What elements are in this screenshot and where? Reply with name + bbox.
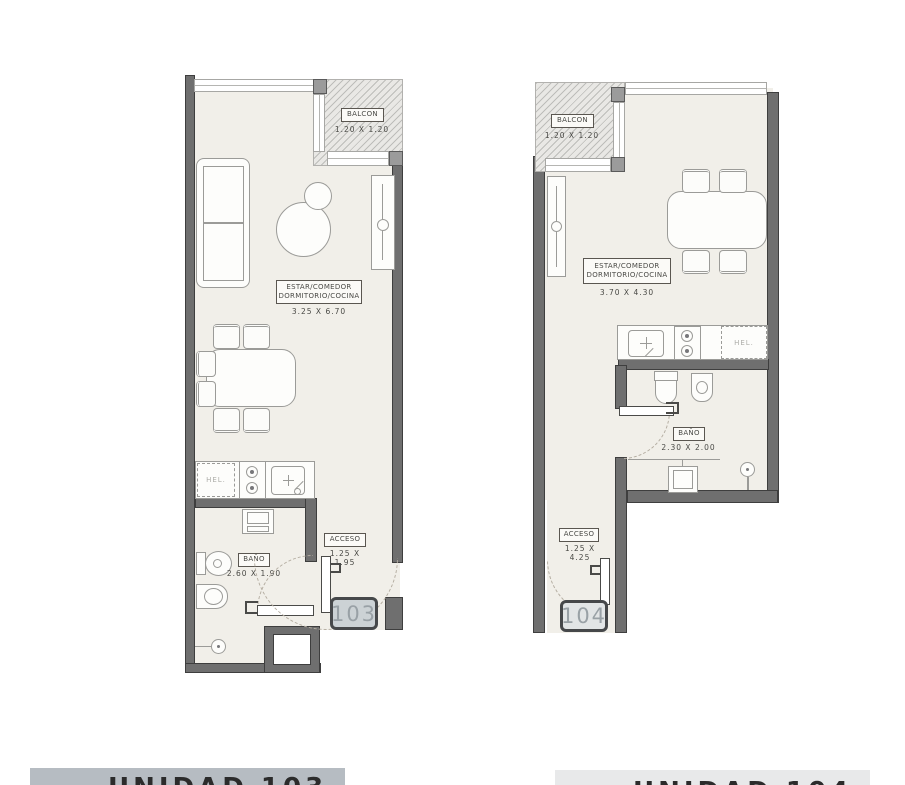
chair bbox=[243, 408, 270, 433]
burner-dot bbox=[250, 470, 254, 474]
dining-table bbox=[667, 191, 767, 249]
door-handle-hook bbox=[590, 565, 600, 575]
vanity-basin bbox=[247, 512, 269, 524]
chair bbox=[196, 351, 216, 377]
dining-table bbox=[206, 349, 296, 407]
balcony-label-103: BALCON bbox=[341, 108, 384, 122]
wall bbox=[385, 597, 403, 630]
window bbox=[194, 79, 314, 92]
window bbox=[625, 82, 767, 95]
access-label-104: ACCESO bbox=[559, 528, 599, 542]
floor-plan-page: BALCON 1.20 X 1.20 ESTAR/COMEDOR DORMITO… bbox=[0, 0, 905, 785]
bidet-basin bbox=[696, 381, 708, 394]
wall bbox=[185, 75, 195, 673]
shower-line bbox=[195, 646, 211, 647]
wall bbox=[627, 490, 778, 503]
room-label-line1: ESTAR/COMEDOR bbox=[594, 262, 659, 271]
sofa-cushion bbox=[203, 166, 244, 223]
vanity-basin bbox=[247, 526, 269, 532]
chair bbox=[682, 250, 710, 274]
wall bbox=[195, 498, 317, 508]
footer-title-103: UNIDAD 103 bbox=[108, 773, 327, 785]
chair bbox=[719, 250, 747, 274]
access-label-text: ACCESO bbox=[330, 535, 361, 544]
wall bbox=[615, 457, 627, 633]
toilet-bowl bbox=[655, 380, 677, 404]
entry-door-leaf-104 bbox=[600, 558, 610, 605]
vanity-basin bbox=[673, 470, 693, 489]
chair bbox=[196, 381, 216, 407]
burner-dot bbox=[685, 334, 689, 338]
bath-label-104: BAÑO bbox=[673, 427, 705, 441]
toilet-detail bbox=[213, 559, 222, 568]
chair bbox=[682, 169, 710, 193]
balcony-label-104: BALCON bbox=[551, 114, 594, 128]
fridge: HEL. bbox=[721, 326, 767, 359]
bath-dims-104: 2.30 X 2.00 bbox=[661, 443, 716, 452]
unit-number-badge-104: 104 bbox=[560, 600, 608, 632]
pouf bbox=[304, 182, 332, 210]
room-label-103: ESTAR/COMEDOR DORMITORIO/COCINA bbox=[276, 280, 362, 304]
chair bbox=[213, 408, 240, 433]
window bbox=[327, 151, 389, 166]
column bbox=[389, 151, 403, 166]
window bbox=[545, 158, 611, 172]
chair bbox=[243, 324, 270, 349]
drain-dot bbox=[217, 645, 220, 648]
bidet-basin bbox=[204, 588, 223, 605]
room-label-line2: DORMITORIO/COCINA bbox=[279, 292, 360, 301]
wall bbox=[533, 156, 545, 633]
access-label-103: ACCESO bbox=[324, 533, 366, 547]
burner-dot bbox=[685, 349, 689, 353]
round-table bbox=[276, 202, 331, 257]
column bbox=[611, 87, 625, 102]
door-handle-hook bbox=[331, 563, 341, 573]
floor-cut-103 bbox=[320, 630, 405, 675]
balcony-dims-104: 1.20 X 1.20 bbox=[541, 131, 603, 140]
room-dims-103: 3.25 X 6.70 bbox=[283, 307, 355, 316]
door-handle bbox=[377, 219, 389, 231]
room-label-line2: DORMITORIO/COCINA bbox=[587, 271, 668, 280]
window bbox=[613, 102, 625, 158]
wall bbox=[767, 92, 779, 503]
chair bbox=[719, 169, 747, 193]
balcony-dims-103: 1.20 X 1.20 bbox=[329, 125, 395, 134]
drain-stem bbox=[747, 477, 749, 490]
shower-edge bbox=[628, 459, 720, 460]
unit-number-103: 103 bbox=[331, 602, 377, 626]
duct-shaft bbox=[273, 634, 311, 665]
chair bbox=[213, 324, 240, 349]
burner-dot bbox=[250, 486, 254, 490]
bath-label-text: BAÑO bbox=[678, 429, 700, 438]
drain-dot bbox=[746, 468, 749, 471]
fridge: HEL. bbox=[197, 463, 235, 497]
access-label-text: ACCESO bbox=[564, 530, 595, 539]
room-label-104: ESTAR/COMEDOR DORMITORIO/COCINA bbox=[583, 258, 671, 284]
footer-title-104: UNIDAD 104 bbox=[633, 777, 852, 785]
wall bbox=[615, 365, 627, 409]
unit-number-badge-103: 103 bbox=[330, 597, 378, 630]
column bbox=[611, 157, 625, 172]
sink-cross bbox=[288, 475, 289, 486]
unit-number-104: 104 bbox=[561, 604, 607, 628]
room-dims-104: 3.70 X 4.30 bbox=[591, 288, 663, 297]
access-dims-104: 1.25 X 4.25 bbox=[554, 544, 606, 562]
balcony-label-text: BALCON bbox=[557, 116, 588, 125]
room-label-line1: ESTAR/COMEDOR bbox=[286, 283, 351, 292]
sink-cross bbox=[646, 337, 647, 349]
door-handle-hook bbox=[245, 601, 258, 614]
fridge-label: HEL. bbox=[734, 339, 754, 347]
wall bbox=[305, 498, 317, 562]
wall bbox=[618, 359, 769, 370]
window bbox=[313, 94, 325, 152]
sofa-cushion bbox=[203, 223, 244, 281]
door-handle-hook bbox=[666, 402, 679, 414]
balcony-label-text: BALCON bbox=[347, 110, 378, 119]
fridge-label: HEL. bbox=[206, 476, 226, 484]
door-handle bbox=[551, 221, 562, 232]
column bbox=[313, 79, 327, 94]
